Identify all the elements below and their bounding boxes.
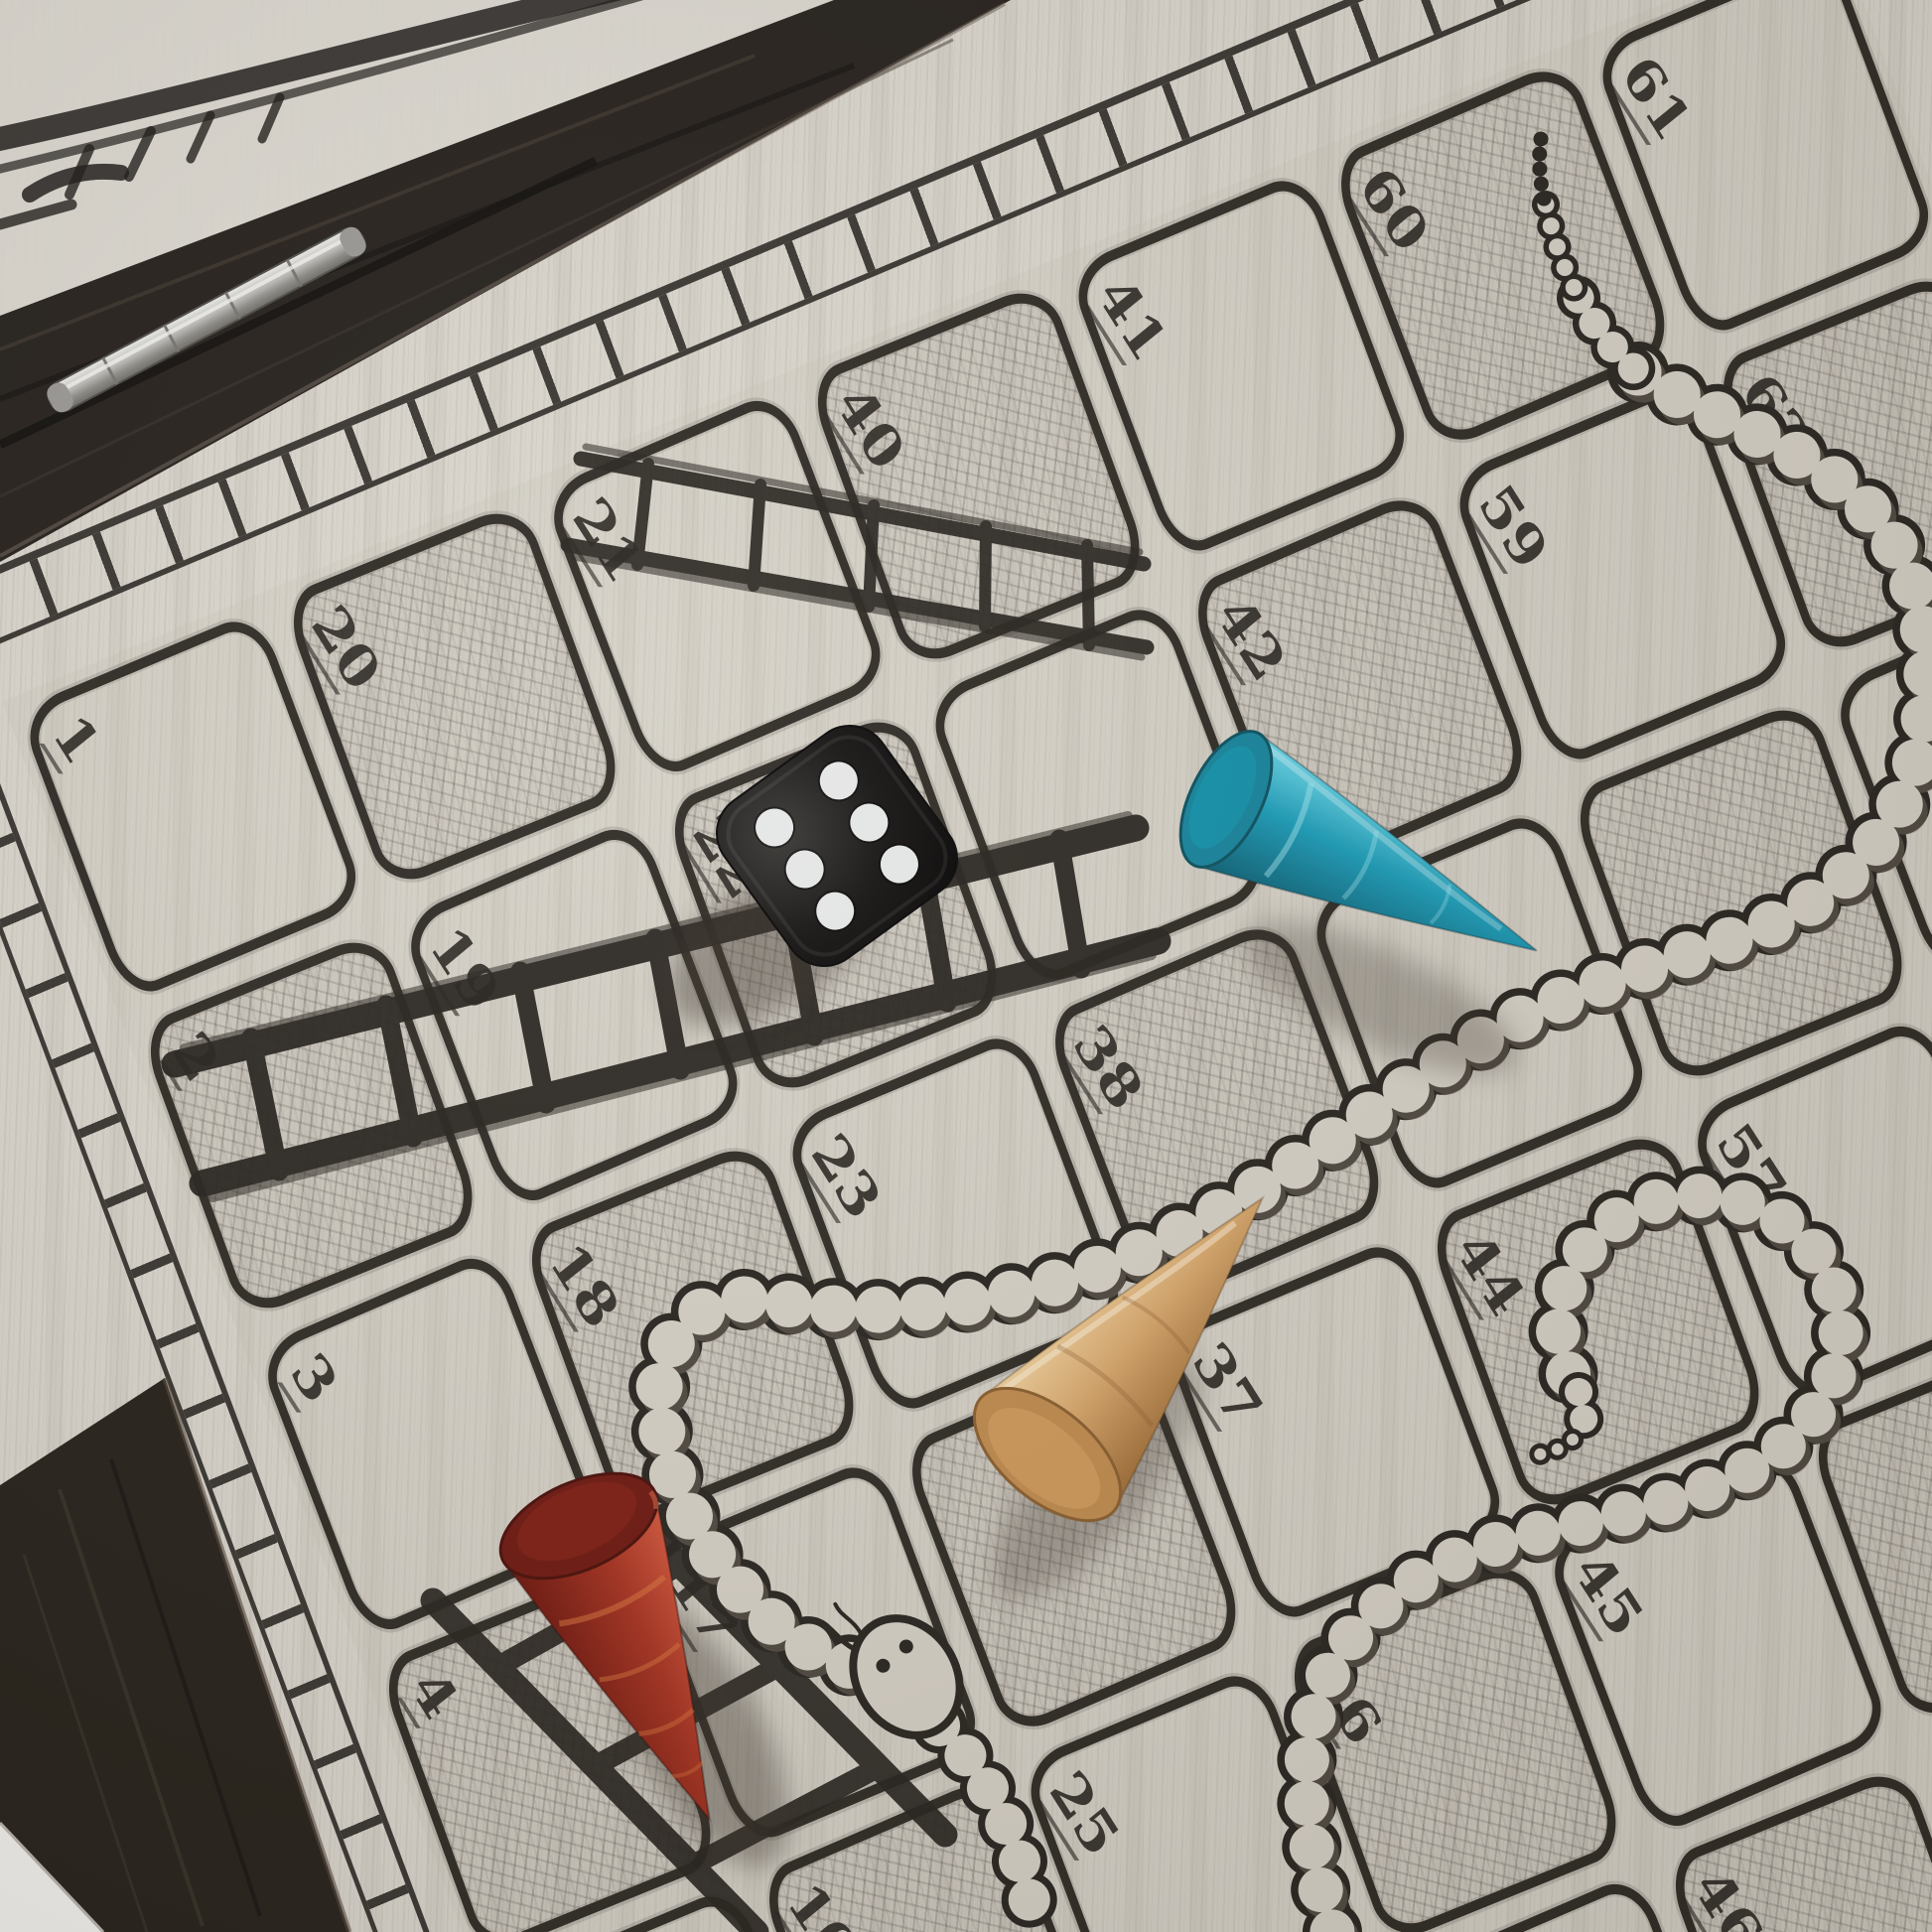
square-number: 23 bbox=[804, 1124, 890, 1228]
square-number: 22 bbox=[685, 804, 770, 908]
square-number: 21 bbox=[565, 487, 650, 592]
square-number: 3 bbox=[283, 1343, 345, 1412]
square-number: 36 bbox=[1305, 1650, 1390, 1754]
square-number: 46 bbox=[1686, 1859, 1771, 1932]
game-board: 1234201918171621222325403837363541424445… bbox=[2, 0, 1932, 1932]
square-number: 18 bbox=[542, 1233, 627, 1337]
hinge bbox=[44, 223, 369, 416]
square-number: 42 bbox=[1208, 586, 1294, 690]
square-number: 60 bbox=[1351, 157, 1437, 261]
square-number: 57 bbox=[1709, 1113, 1794, 1217]
board-grid: 1234201918171621222325403837363541424445… bbox=[1837, 0, 1932, 1932]
square-number: 19 bbox=[422, 916, 507, 1021]
square-number: 37 bbox=[1185, 1332, 1271, 1437]
square-number: 40 bbox=[828, 375, 913, 480]
square-number: 62 bbox=[1733, 363, 1819, 468]
square-number: 38 bbox=[1065, 1015, 1151, 1119]
square-number: 1 bbox=[45, 705, 107, 773]
square-number: 20 bbox=[304, 596, 389, 700]
photo-stage: 1234201918171621222325403837363541424445… bbox=[0, 0, 1932, 1932]
square-number: 41 bbox=[1090, 266, 1175, 370]
square-number: 61 bbox=[1614, 46, 1700, 150]
square-number: 44 bbox=[1448, 1221, 1533, 1325]
square-number: 45 bbox=[1566, 1542, 1651, 1646]
square-number: 4 bbox=[403, 1660, 467, 1728]
square-number: 59 bbox=[1471, 475, 1557, 579]
square-number: 25 bbox=[1042, 1761, 1128, 1865]
square-number: 17 bbox=[661, 1553, 747, 1657]
square-number: 16 bbox=[779, 1872, 865, 1932]
table-surface bbox=[0, 1823, 103, 1932]
square-number: 2 bbox=[165, 1023, 228, 1091]
